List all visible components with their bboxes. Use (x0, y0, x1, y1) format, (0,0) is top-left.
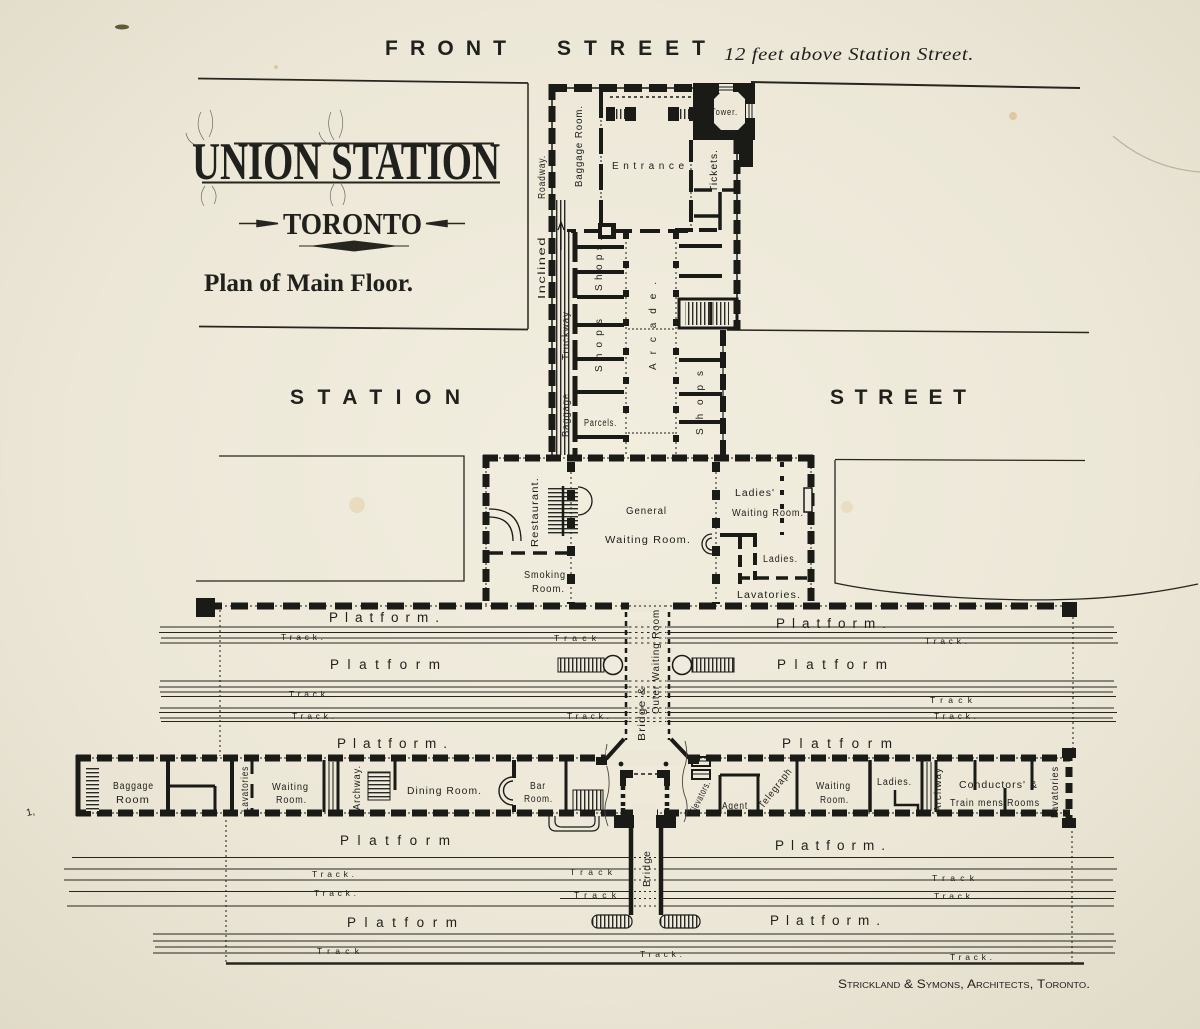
svg-text:Room.: Room. (276, 795, 307, 806)
svg-text:Dining Room.: Dining Room. (407, 786, 482, 797)
svg-text:Tower.: Tower. (711, 107, 738, 117)
svg-text:Outer Waiting Room: Outer Waiting Room (651, 609, 662, 714)
svg-text:Waiting Room.: Waiting Room. (605, 535, 691, 546)
svg-text:Parcels.: Parcels. (584, 418, 617, 429)
svg-text:Platform.: Platform. (337, 736, 447, 751)
svg-text:Bar: Bar (530, 781, 546, 792)
svg-text:Baggage Room.: Baggage Room. (574, 105, 585, 187)
svg-text:Train mens Rooms: Train mens Rooms (950, 798, 1040, 809)
svg-text:Restaurant.: Restaurant. (530, 477, 541, 547)
svg-text:12 feet above Station Street.: 12 feet above Station Street. (724, 44, 974, 64)
svg-text:Agent: Agent (722, 801, 748, 812)
svg-text:Archway: Archway (933, 767, 944, 812)
svg-text:Platform.: Platform. (776, 616, 886, 631)
svg-text:Room: Room (116, 795, 150, 806)
svg-text:Room.: Room. (524, 794, 553, 805)
svg-text:Ladies.: Ladies. (763, 554, 798, 565)
svg-text:Waiting: Waiting (272, 782, 309, 793)
svg-text:Waiting: Waiting (816, 781, 851, 792)
svg-text:TORONTO: TORONTO (283, 206, 422, 241)
svg-text:Room.: Room. (820, 795, 849, 806)
svg-text:Platform.: Platform. (329, 610, 439, 625)
svg-text:Room.: Room. (532, 584, 565, 595)
svg-text:Baggage: Baggage (561, 393, 572, 437)
svg-text:Truckway: Truckway (561, 311, 572, 360)
svg-text:Smoking: Smoking (524, 570, 566, 581)
svg-text:Lavatories: Lavatories (240, 766, 251, 812)
svg-text:Entrance: Entrance (612, 161, 685, 172)
svg-text:Inclined: Inclined (537, 236, 548, 299)
svg-text:Ladies': Ladies' (735, 488, 775, 499)
svg-text:General: General (626, 506, 667, 517)
svg-text:Platform.: Platform. (770, 913, 880, 928)
svg-text:Plan of Main Floor.: Plan of Main Floor. (204, 270, 413, 297)
svg-text:Archway.: Archway. (352, 765, 363, 810)
svg-text:Lavatories.: Lavatories. (737, 590, 801, 601)
svg-text:Waiting Room.: Waiting Room. (732, 508, 804, 519)
svg-text:Roadway.: Roadway. (537, 155, 548, 199)
svg-text:Conductors' &: Conductors' & (959, 780, 1038, 791)
svg-text:Strickland & Symons, Architect: Strickland & Symons, Architects, Toronto… (838, 979, 1090, 991)
svg-text:Platform.: Platform. (775, 838, 885, 853)
svg-text:Tickets.: Tickets. (709, 149, 720, 192)
svg-text:Bridge: Bridge (642, 850, 653, 887)
svg-text:Ladies.: Ladies. (877, 777, 912, 788)
svg-text:Lavatories: Lavatories (1050, 766, 1061, 818)
svg-text:Baggage: Baggage (113, 781, 154, 792)
svg-text:Bridge &: Bridge & (637, 686, 648, 741)
